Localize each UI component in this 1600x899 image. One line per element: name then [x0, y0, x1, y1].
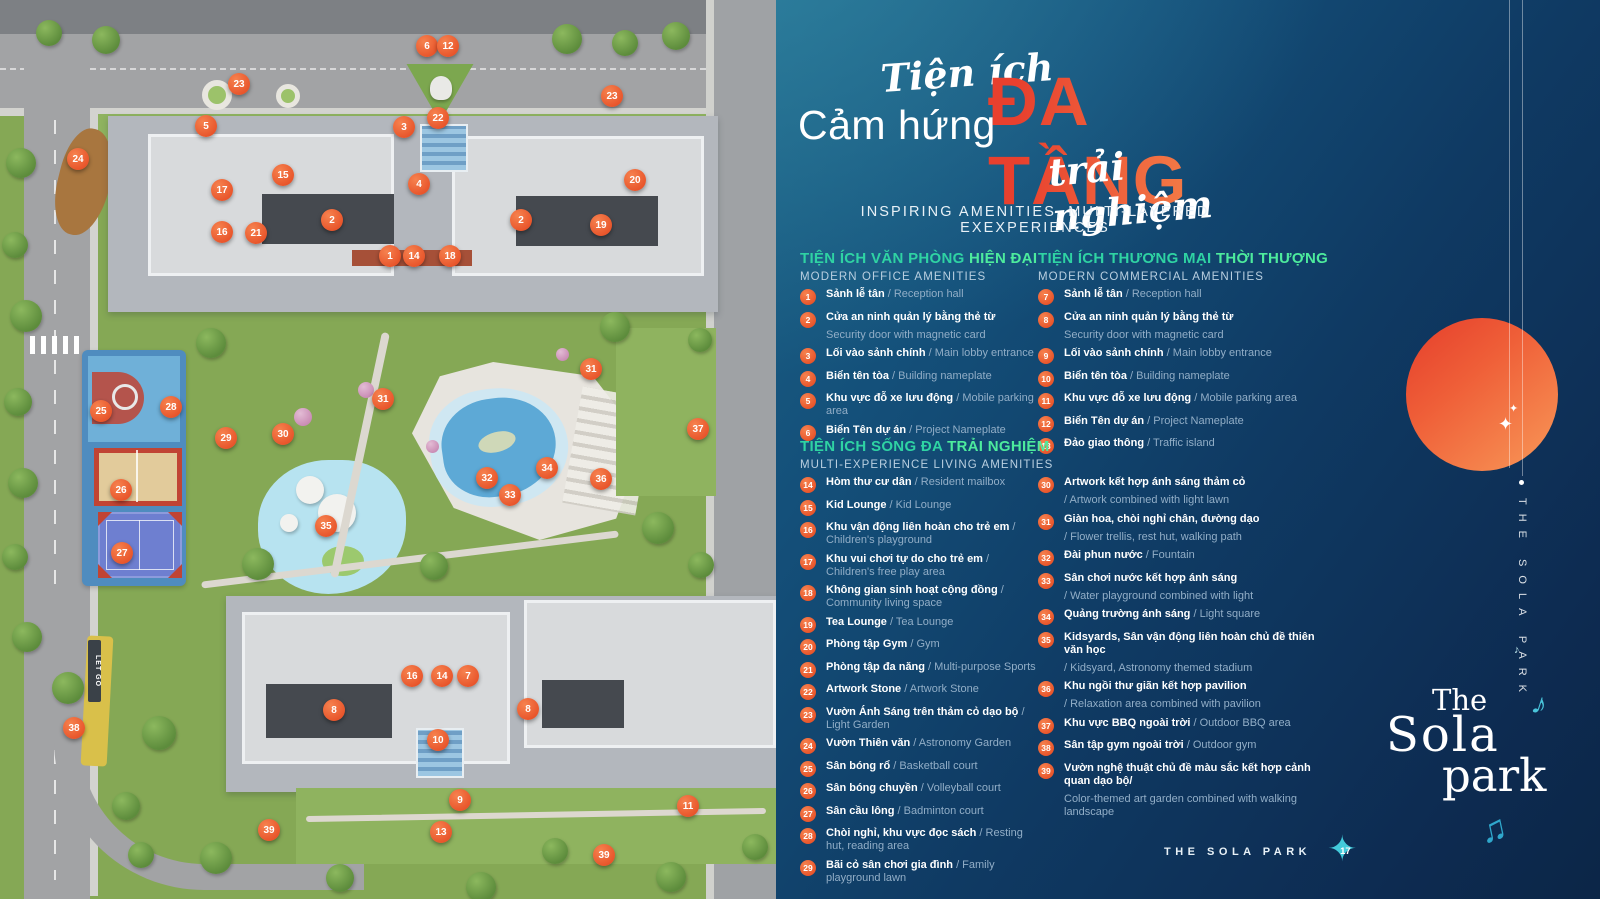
- legend-item-text: Sân cầu lông / Badminton court: [826, 805, 984, 818]
- legend-item: 20Phòng tập Gym / Gym: [800, 638, 1040, 655]
- map-marker-16: 16: [401, 665, 423, 687]
- legend-item-text: Sảnh lễ tân / Reception hall: [1064, 288, 1202, 301]
- map-marker-25: 25: [90, 400, 112, 422]
- legend-item: 10Biển tên tòa / Building nameplate: [1038, 370, 1308, 387]
- legend-item: 17Khu vui chơi tự do cho trẻ em / Childr…: [800, 553, 1040, 579]
- legend-item-number: 39: [1038, 763, 1054, 779]
- page-number-star: ✦ 17: [1327, 832, 1367, 872]
- map-marker-16: 16: [211, 221, 233, 243]
- map-marker-17: 17: [211, 179, 233, 201]
- legend-item: 1Sảnh lễ tân / Reception hall: [800, 288, 1038, 305]
- legend-item-number: 23: [800, 707, 816, 723]
- legend-item-text: Hòm thư cư dân / Resident mailbox: [826, 476, 1005, 489]
- section-subtitle: MODERN OFFICE AMENITIES: [800, 271, 1038, 283]
- legend-item-number: 37: [1038, 718, 1054, 734]
- gym-sign: LET GO: [88, 640, 101, 702]
- blossom-tree: [426, 440, 439, 453]
- legend-item-number: 17: [800, 554, 816, 570]
- legend-item-text: Kid Lounge / Kid Lounge: [826, 499, 951, 512]
- legend-item-number: 30: [1038, 477, 1054, 493]
- map-marker-27: 27: [111, 542, 133, 564]
- map-marker-37: 37: [687, 418, 709, 440]
- map-marker-39: 39: [593, 844, 615, 866]
- garden-plaza: [276, 84, 300, 108]
- legend-item-text: Khu vực đỗ xe lưu động / Mobile parking …: [1064, 392, 1297, 405]
- blossom-tree: [556, 348, 569, 361]
- legend-item: 35Kidsyards, Sân vận động liên hoàn chủ …: [1038, 631, 1320, 675]
- logo-line: park: [1442, 756, 1576, 796]
- map-marker-31: 31: [580, 358, 602, 380]
- legend-item-number: 25: [800, 761, 816, 777]
- map-marker-33: 33: [499, 484, 521, 506]
- legend-item-number: 1: [800, 289, 816, 305]
- page-number: 17: [1340, 846, 1351, 857]
- legend-item-number: 35: [1038, 632, 1054, 648]
- map-marker-26: 26: [110, 479, 132, 501]
- legend-item-text: Vườn Ánh Sáng trên thảm cỏ dạo bộ / Ligh…: [826, 706, 1040, 732]
- legend-item: 9Lối vào sảnh chính / Main lobby entranc…: [1038, 347, 1308, 364]
- legend-item-number: 18: [800, 585, 816, 601]
- section-title: TIỆN ÍCH THƯƠNG MẠI THỜI THƯỢNG: [1038, 250, 1308, 267]
- legend-item-text: Khu vận động liên hoàn cho trẻ em / Chil…: [826, 521, 1040, 547]
- legend-item: 3Lối vào sảnh chính / Main lobby entranc…: [800, 347, 1038, 364]
- legend-item: 22Artwork Stone / Artwork Stone: [800, 683, 1040, 700]
- legend-item-text: Biển Tên dự án / Project Nameplate: [1064, 415, 1244, 428]
- tree: [2, 544, 28, 570]
- page-footer: THE SOLA PARK ✦ 17: [1164, 832, 1367, 872]
- legend-item-text: Khu vui chơi tự do cho trẻ em / Children…: [826, 553, 1040, 579]
- tree: [662, 22, 690, 50]
- legend-item: 23Vườn Ánh Sáng trên thảm cỏ dạo bộ / Li…: [800, 706, 1040, 732]
- map-marker-9: 9: [449, 789, 471, 811]
- legend-item-text: Cửa an ninh quản lý bằng thẻ từSecurity …: [1064, 311, 1233, 342]
- legend-item-text: Lối vào sảnh chính / Main lobby entrance: [1064, 347, 1272, 360]
- volleyball-court: [94, 448, 182, 506]
- legend-item-text: Artwork Stone / Artwork Stone: [826, 683, 979, 696]
- legend-item-number: 5: [800, 393, 816, 409]
- tree: [6, 148, 36, 178]
- living-items-left: 14Hòm thư cư dân / Resident mailbox15Kid…: [800, 476, 1040, 890]
- entrance-canopy: [420, 124, 468, 172]
- legend-item-number: 19: [800, 617, 816, 633]
- legend-item: 15Kid Lounge / Kid Lounge: [800, 499, 1040, 516]
- legend-item: 16Khu vận động liên hoàn cho trẻ em / Ch…: [800, 521, 1040, 547]
- legend-item-text: Biển Tên dự án / Project Nameplate: [826, 424, 1006, 437]
- vertical-brand-text: THE SOLA PARK: [1516, 498, 1528, 701]
- legend-item: 14Hòm thư cư dân / Resident mailbox: [800, 476, 1040, 493]
- map-marker-29: 29: [215, 427, 237, 449]
- decor-dot: [1519, 480, 1524, 485]
- tree: [642, 512, 674, 544]
- tree: [612, 30, 638, 56]
- roof-section: [542, 680, 624, 728]
- tree: [52, 672, 84, 704]
- living-items-right: 30Artwork kết hợp ánh sáng thảm cỏ/ Artw…: [1038, 476, 1320, 824]
- legend-item-number: 14: [800, 477, 816, 493]
- legend-item: 18Không gian sinh hoạt cộng đồng / Commu…: [800, 584, 1040, 610]
- bbq-zone: [616, 328, 716, 496]
- map-marker-5: 5: [195, 115, 217, 137]
- legend-item-text: Sân bóng chuyền / Volleyball court: [826, 782, 1001, 795]
- legend-item: 28Chòi nghỉ, khu vực đọc sách / Resting …: [800, 827, 1040, 853]
- legend-item: 26Sân bóng chuyền / Volleyball court: [800, 782, 1040, 799]
- legend-item-text: Khu vực đỗ xe lưu động / Mobile parking …: [826, 392, 1038, 418]
- legend-item-text: Không gian sinh hoạt cộng đồng / Communi…: [826, 584, 1040, 610]
- legend-item-number: 26: [800, 783, 816, 799]
- map-marker-11: 11: [677, 795, 699, 817]
- legend-item: 8Cửa an ninh quản lý bằng thẻ từSecurity…: [1038, 311, 1308, 342]
- section-office: TIỆN ÍCH VĂN PHÒNG HIỆN ĐẠI MODERN OFFIC…: [800, 250, 1038, 283]
- map-marker-21: 21: [245, 222, 267, 244]
- map-marker-13: 13: [430, 821, 452, 843]
- site-map: LET GO 612232322352415174202219162111418…: [0, 0, 776, 899]
- blossom-tree: [294, 408, 312, 426]
- tree: [200, 842, 232, 874]
- legend-item-number: 2: [800, 312, 816, 328]
- tree: [542, 838, 568, 864]
- section-title: TIỆN ÍCH SỐNG ĐA TRẢI NGHIỆM: [800, 438, 1100, 455]
- legend-item-text: Bãi cỏ sân chơi gia đình / Family playgr…: [826, 859, 1040, 885]
- map-marker-23: 23: [601, 85, 623, 107]
- legend-item-number: 16: [800, 522, 816, 538]
- legend-item: 29Bãi cỏ sân chơi gia đình / Family play…: [800, 859, 1040, 885]
- legend-item: 38Sân tập gym ngoài trời / Outdoor gym: [1038, 739, 1320, 756]
- section-commercial: TIỆN ÍCH THƯƠNG MẠI THỜI THƯỢNG MODERN C…: [1038, 250, 1308, 283]
- commercial-items: 7Sảnh lễ tân / Reception hall8Cửa an nin…: [1038, 288, 1308, 460]
- legend-item: 19Tea Lounge / Tea Lounge: [800, 616, 1040, 633]
- tree: [112, 792, 140, 820]
- map-marker-35: 35: [315, 515, 337, 537]
- legend-item: 31Giàn hoa, chòi nghỉ chân, đường dạo/ F…: [1038, 513, 1320, 544]
- tree: [242, 548, 274, 580]
- tree: [552, 24, 582, 54]
- map-marker-20: 20: [624, 169, 646, 191]
- map-marker-10: 10: [427, 729, 449, 751]
- tree: [688, 552, 714, 578]
- legend-item-text: Khu ngồi thư giãn kết hợp pavilion/ Rela…: [1064, 680, 1261, 711]
- tree: [142, 716, 176, 750]
- title-subtitle: INSPIRING AMENITIES, MULTI-LAYERED EXEXP…: [792, 204, 1278, 236]
- map-marker-14: 14: [403, 245, 425, 267]
- music-note-icon: ♫: [1476, 806, 1511, 853]
- map-marker-22: 22: [427, 107, 449, 129]
- section-subtitle: MULTI-EXPERIENCE LIVING AMENITIES: [800, 459, 1100, 471]
- map-marker-18: 18: [439, 245, 461, 267]
- tree: [12, 622, 42, 652]
- legend-item: 25Sân bóng rổ / Basketball court: [800, 760, 1040, 777]
- music-note-icon: ♪: [1514, 644, 1520, 656]
- legend-item: 34Quảng trường ánh sáng / Light square: [1038, 608, 1320, 625]
- tree: [8, 468, 38, 498]
- legend-item: 4Biển tên tòa / Building nameplate: [800, 370, 1038, 387]
- legend-item-number: 20: [800, 639, 816, 655]
- legend-item: 27Sân cầu lông / Badminton court: [800, 805, 1040, 822]
- legend-item: 2Cửa an ninh quản lý bằng thẻ từSecurity…: [800, 311, 1038, 342]
- tree: [196, 328, 226, 358]
- legend-item-number: 27: [800, 806, 816, 822]
- section-living: TIỆN ÍCH SỐNG ĐA TRẢI NGHIỆM MULTI-EXPER…: [800, 438, 1100, 471]
- tree: [600, 312, 630, 342]
- map-marker-32: 32: [476, 467, 498, 489]
- map-marker-3: 3: [393, 116, 415, 138]
- legend-item-text: Biển tên tòa / Building nameplate: [1064, 370, 1230, 383]
- legend-item-number: 32: [1038, 550, 1054, 566]
- legend-item-text: Cửa an ninh quản lý bằng thẻ từSecurity …: [826, 311, 995, 342]
- legend-item: 7Sảnh lễ tân / Reception hall: [1038, 288, 1308, 305]
- legend-item-number: 24: [800, 738, 816, 754]
- legend-item-text: Đài phun nước / Fountain: [1064, 549, 1195, 562]
- map-marker-38: 38: [63, 717, 85, 739]
- road: [0, 0, 776, 34]
- tree: [36, 20, 62, 46]
- map-marker-2: 2: [510, 209, 532, 231]
- legend-item-text: Vườn Thiên văn / Astronomy Garden: [826, 737, 1011, 750]
- legend-item-text: Sảnh lễ tân / Reception hall: [826, 288, 964, 301]
- title-block: Tiện ích Cảm hứng ĐA TẦNG trải nghiệm IN…: [792, 50, 1278, 235]
- legend-item-number: 29: [800, 860, 816, 876]
- legend-item: 30Artwork kết hợp ánh sáng thảm cỏ/ Artw…: [1038, 476, 1320, 507]
- tree: [128, 842, 154, 868]
- legend-item-number: 11: [1038, 393, 1054, 409]
- legend-item: 21Phòng tập đa năng / Multi-purpose Spor…: [800, 661, 1040, 678]
- legend-item: 5Khu vực đỗ xe lưu động / Mobile parking…: [800, 392, 1038, 418]
- tree: [466, 872, 496, 899]
- legend-item-number: 9: [1038, 348, 1054, 364]
- road-marking: [0, 68, 776, 70]
- legend-item-text: Sân chơi nước kết hợp ánh sáng/ Water pl…: [1064, 572, 1253, 603]
- map-marker-23: 23: [228, 73, 250, 95]
- garden-strip: [296, 788, 776, 864]
- sparkle-icon: ✦: [1498, 414, 1513, 435]
- tree: [656, 862, 686, 892]
- legend-item-number: 28: [800, 828, 816, 844]
- legend-item-text: Khu vực BBQ ngoài trời / Outdoor BBQ are…: [1064, 717, 1291, 730]
- tree: [92, 26, 120, 54]
- map-marker-14: 14: [431, 665, 453, 687]
- footer-brand: THE SOLA PARK: [1164, 846, 1311, 858]
- legend-item-text: Lối vào sảnh chính / Main lobby entrance: [826, 347, 1034, 360]
- decor-line: [1522, 0, 1523, 476]
- title-main-left: Cảm hứng: [798, 102, 996, 149]
- map-marker-12: 12: [437, 35, 459, 57]
- map-marker-31: 31: [372, 388, 394, 410]
- map-marker-39: 39: [258, 819, 280, 841]
- map-marker-8: 8: [517, 698, 539, 720]
- legend-item-number: 22: [800, 684, 816, 700]
- tree: [688, 328, 712, 352]
- play-dome: [296, 476, 324, 504]
- tree: [10, 300, 42, 332]
- office-items: 1Sảnh lễ tân / Reception hall2Cửa an nin…: [800, 288, 1038, 446]
- legend-item-text: Biển tên tòa / Building nameplate: [826, 370, 992, 383]
- map-marker-19: 19: [590, 214, 612, 236]
- legend-item-text: Giàn hoa, chòi nghỉ chân, đường dạo/ Flo…: [1064, 513, 1259, 544]
- map-marker-34: 34: [536, 457, 558, 479]
- legend-item: 33Sân chơi nước kết hợp ánh sáng/ Water …: [1038, 572, 1320, 603]
- roof-section: [516, 196, 658, 246]
- legend-item: 32Đài phun nước / Fountain: [1038, 549, 1320, 566]
- tree: [4, 388, 32, 416]
- map-marker-4: 4: [408, 173, 430, 195]
- legend-item-number: 8: [1038, 312, 1054, 328]
- legend-item-number: 38: [1038, 740, 1054, 756]
- sun-circle: [1406, 318, 1558, 471]
- legend-item-number: 4: [800, 371, 816, 387]
- tree: [2, 232, 28, 258]
- legend-item-text: Phòng tập Gym / Gym: [826, 638, 940, 651]
- legend-item: 11Khu vực đỗ xe lưu động / Mobile parkin…: [1038, 392, 1308, 409]
- legend-item-text: Tea Lounge / Tea Lounge: [826, 616, 953, 629]
- map-marker-2: 2: [321, 209, 343, 231]
- section-title: TIỆN ÍCH VĂN PHÒNG HIỆN ĐẠI: [800, 250, 1038, 267]
- legend-item-number: 31: [1038, 514, 1054, 530]
- legend-item-text: Phòng tập đa năng / Multi-purpose Sports: [826, 661, 1036, 674]
- map-marker-15: 15: [272, 164, 294, 186]
- legend-item-text: Vườn nghệ thuật chủ đề màu sắc kết hợp c…: [1064, 762, 1320, 819]
- tree: [420, 552, 448, 580]
- legend-item-text: Quảng trường ánh sáng / Light square: [1064, 608, 1260, 621]
- legend-item-text: Sân bóng rổ / Basketball court: [826, 760, 978, 773]
- legend-item: 37Khu vực BBQ ngoài trời / Outdoor BBQ a…: [1038, 717, 1320, 734]
- amenities-panel: Tiện ích Cảm hứng ĐA TẦNG trải nghiệm IN…: [776, 0, 1600, 899]
- map-marker-1: 1: [379, 245, 401, 267]
- legend-item-text: Sân tập gym ngoài trời / Outdoor gym: [1064, 739, 1256, 752]
- legend-item-number: 3: [800, 348, 816, 364]
- decor-line: [1509, 0, 1510, 468]
- brochure-page: LET GO 612232322352415174202219162111418…: [0, 0, 1600, 899]
- tree: [326, 864, 354, 892]
- section-subtitle: MODERN COMMERCIAL AMENITIES: [1038, 271, 1308, 283]
- legend-item-number: 12: [1038, 416, 1054, 432]
- statue: [430, 76, 452, 100]
- legend-item: 39Vườn nghệ thuật chủ đề màu sắc kết hợp…: [1038, 762, 1320, 819]
- crosswalk: [30, 336, 84, 354]
- volleyball-court-line: [136, 450, 138, 502]
- legend-item: 12Biển Tên dự án / Project Nameplate: [1038, 415, 1308, 432]
- map-marker-28: 28: [160, 396, 182, 418]
- map-marker-6: 6: [416, 35, 438, 57]
- legend-item-number: 10: [1038, 371, 1054, 387]
- legend-item-number: 36: [1038, 681, 1054, 697]
- legend-item-text: Chòi nghỉ, khu vực đọc sách / Resting hu…: [826, 827, 1040, 853]
- legend-item-text: Kidsyards, Sân vận động liên hoàn chủ đề…: [1064, 631, 1320, 675]
- legend-item-number: 21: [800, 662, 816, 678]
- map-marker-24: 24: [67, 148, 89, 170]
- basketball-court-circle: [112, 384, 138, 410]
- legend-item: 24Vườn Thiên văn / Astronomy Garden: [800, 737, 1040, 754]
- legend-item-number: 33: [1038, 573, 1054, 589]
- badminton-court-net: [139, 520, 140, 570]
- map-marker-36: 36: [590, 468, 612, 490]
- legend-item-text: Artwork kết hợp ánh sáng thảm cỏ/ Artwor…: [1064, 476, 1245, 507]
- legend-item-number: 7: [1038, 289, 1054, 305]
- tree: [742, 834, 768, 860]
- legend-item-number: 15: [800, 500, 816, 516]
- legend-item-number: 34: [1038, 609, 1054, 625]
- map-marker-8: 8: [323, 699, 345, 721]
- legend-item: 36Khu ngồi thư giãn kết hợp pavilion/ Re…: [1038, 680, 1320, 711]
- map-marker-7: 7: [457, 665, 479, 687]
- map-marker-30: 30: [272, 423, 294, 445]
- play-dome: [280, 514, 298, 532]
